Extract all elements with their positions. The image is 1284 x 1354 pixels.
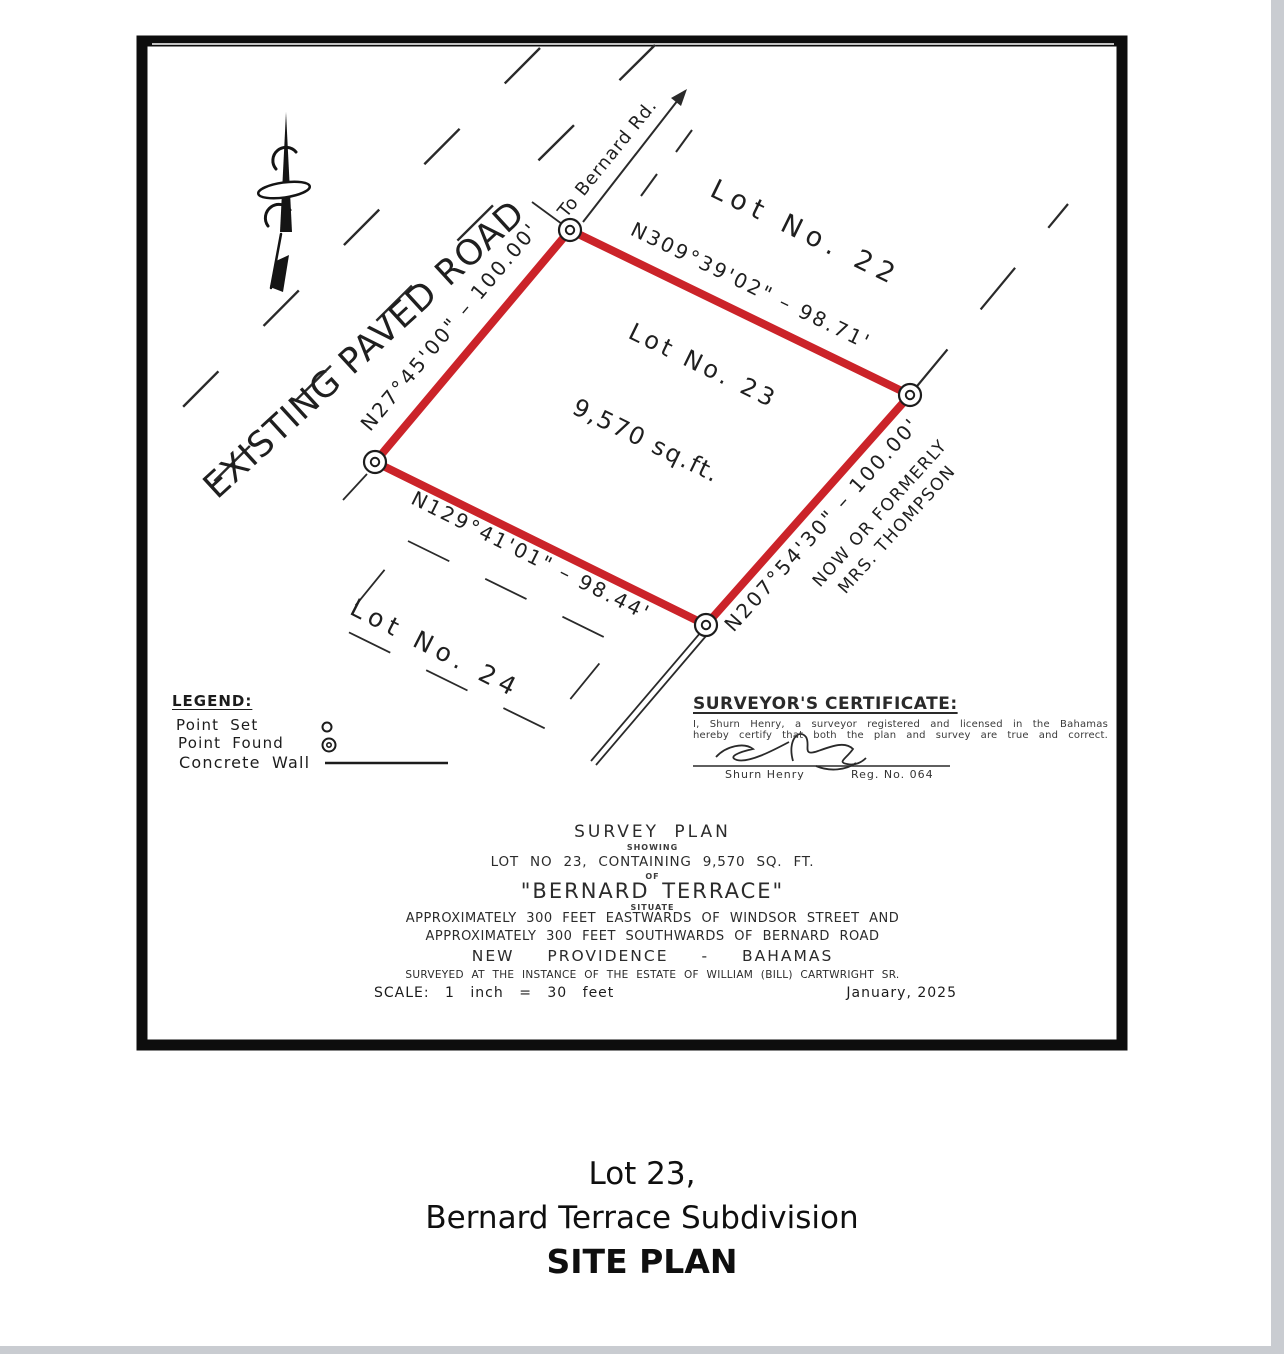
legend-title: LEGEND:	[172, 692, 252, 710]
bernard-road-tick-1	[641, 174, 657, 196]
site-plan-page: EXISTING PAVED ROAD To Bernard Rd. Lot N…	[0, 0, 1284, 1354]
title-location-line1: APPROXIMATELY 300 FEET EASTWARDS OF WIND…	[340, 911, 965, 926]
bernard-road-tick-2	[676, 130, 692, 152]
west-corner-leader	[343, 474, 367, 500]
corner-marker-east	[899, 384, 921, 406]
title-scale-row: SCALE: 1 inch = 30 feet January, 2025	[340, 985, 965, 1001]
caption-site-plan: SITE PLAN	[0, 1240, 1284, 1284]
legend-concrete-wall-label: Concrete Wall	[179, 753, 310, 772]
title-showing: SHOWING	[340, 843, 965, 852]
concrete-wall-line-2	[596, 636, 706, 765]
legend: LEGEND: Point Set Point Found Concrete W…	[172, 692, 252, 710]
lot23-area-label: 9,570 sq.ft.	[568, 393, 725, 489]
to-bernard-road-label: To Bernard Rd.	[553, 95, 662, 222]
title-survey-plan: SURVEY PLAN	[340, 822, 965, 842]
north-arrow-icon	[257, 112, 311, 292]
scan-edge-right	[1271, 0, 1284, 1354]
certificate-title: SURVEYOR'S CERTIFICATE:	[693, 694, 1111, 714]
title-surveyed-for: SURVEYED AT THE INSTANCE OF THE ESTATE O…	[340, 969, 965, 981]
title-island: NEW PROVIDENCE - BAHAMAS	[340, 947, 965, 965]
point-found-icon	[323, 739, 336, 752]
lot23-label: Lot No. 23	[624, 318, 782, 414]
legend-point-found-label: Point Found	[178, 734, 284, 752]
bearing-south-side: N129°41'01" – 98.44'	[408, 486, 655, 625]
scale-note: SCALE: 1 inch = 30 feet	[374, 985, 614, 1001]
caption-subdivision: Bernard Terrace Subdivision	[0, 1196, 1284, 1240]
title-location-line2: APPROXIMATELY 300 FEET SOUTHWARDS OF BER…	[340, 929, 965, 944]
page-caption: Lot 23, Bernard Terrace Subdivision SITE…	[0, 1152, 1284, 1284]
concrete-wall-line-1	[591, 632, 701, 761]
north-arrow-band	[257, 179, 311, 201]
certificate-signatory: Shurn Henry	[725, 768, 805, 781]
lot24-label: Lot No. 24	[346, 593, 526, 704]
corner-marker-top	[559, 219, 581, 241]
legend-point-set-label: Point Set	[176, 716, 258, 734]
caption-lot: Lot 23,	[0, 1152, 1284, 1196]
surveyors-certificate: SURVEYOR'S CERTIFICATE: I, Shurn Henry, …	[693, 694, 1111, 714]
survey-drawing: EXISTING PAVED ROAD To Bernard Rd. Lot N…	[0, 0, 1284, 1354]
survey-date: January, 2025	[846, 985, 957, 1001]
scan-edge-bottom	[0, 1346, 1284, 1354]
corner-marker-west	[364, 451, 386, 473]
lot22-boundary-dashed	[913, 204, 1068, 391]
certificate-body-line1: I, Shurn Henry, a surveyor registered an…	[693, 720, 1108, 730]
corner-marker-south	[695, 614, 717, 636]
north-arrow-needle	[280, 112, 292, 232]
certificate-body-line2: hereby certify that both the plan and su…	[693, 731, 1108, 741]
bernard-road-arrowhead	[671, 89, 687, 106]
title-bernard-terrace: "BERNARD TERRACE"	[340, 879, 965, 903]
title-lot-containing: LOT NO 23, CONTAINING 9,570 SQ. FT.	[340, 854, 965, 870]
point-set-icon	[323, 723, 332, 732]
certificate-registration: Reg. No. 064	[851, 768, 934, 781]
